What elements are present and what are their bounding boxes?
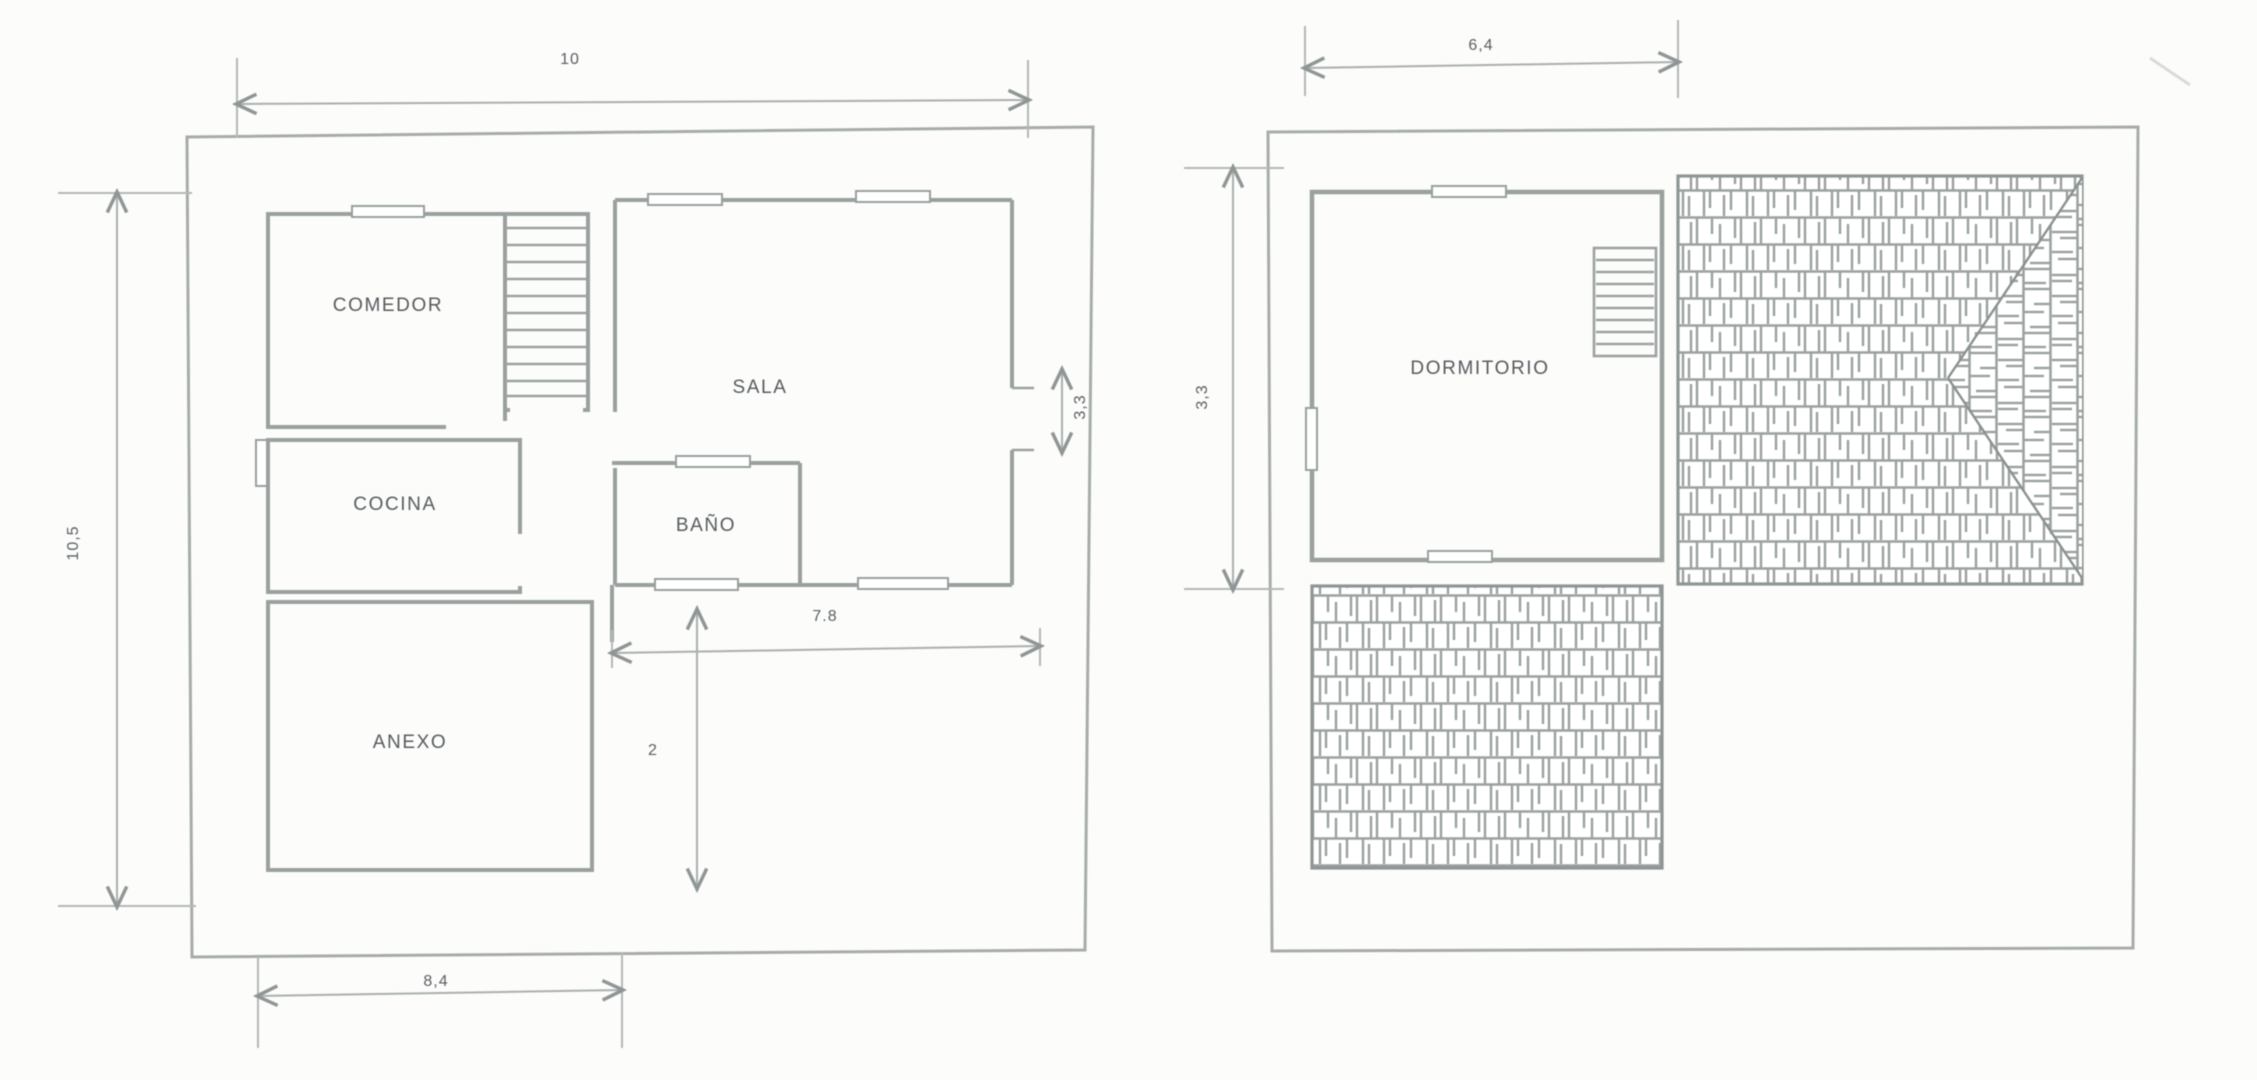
dim-label-left-height: 10,5 bbox=[65, 525, 82, 560]
ground-floor-site-boundary bbox=[187, 127, 1093, 957]
upper-stair-treads bbox=[1596, 260, 1654, 344]
roof-hatch-bottom-left bbox=[1312, 586, 1662, 868]
room-label-cocina: COCINA bbox=[353, 494, 437, 515]
ground-floor-plan: COMEDOR COCINA SALA BAÑO ANEXO 10 10,5 8… bbox=[58, 51, 1093, 1048]
dim-label-left-height: 3,3 bbox=[1194, 384, 1211, 409]
dim-label-bottom-width: 8,4 bbox=[423, 973, 448, 990]
window-icon bbox=[856, 191, 930, 202]
dim-label-top-width: 10 bbox=[560, 51, 580, 68]
window-icon bbox=[256, 440, 267, 486]
ground-floor-windows bbox=[256, 191, 948, 590]
window-icon bbox=[648, 194, 722, 205]
ground-floor-dimensions bbox=[58, 58, 1062, 1048]
dimension-line-bottom bbox=[258, 990, 622, 996]
dim-label-interior-height: 2 bbox=[648, 742, 658, 759]
room-label-anexo: ANEXO bbox=[373, 732, 448, 753]
cocina-walls bbox=[268, 440, 520, 592]
stair-treads bbox=[507, 228, 586, 396]
upper-stair-enclosure bbox=[1594, 248, 1656, 356]
dimension-line-interior-width bbox=[612, 646, 1040, 653]
window-icon bbox=[858, 578, 948, 589]
window-icon bbox=[352, 206, 424, 217]
window-icon bbox=[1428, 551, 1492, 562]
scanned-floor-plan-sheet: COMEDOR COCINA SALA BAÑO ANEXO 10 10,5 8… bbox=[0, 0, 2257, 1080]
dim-label-interior-width: 7.8 bbox=[812, 608, 837, 625]
floor-plan-drawing: COMEDOR COCINA SALA BAÑO ANEXO 10 10,5 8… bbox=[0, 0, 2257, 1080]
upper-floor-dimensions bbox=[1184, 20, 1678, 589]
window-icon bbox=[1432, 186, 1506, 197]
window-icon bbox=[676, 456, 750, 467]
upper-floor-plan: DORMITORIO 6,4 3,3 bbox=[1184, 20, 2138, 951]
dimension-line-top bbox=[237, 100, 1028, 104]
room-label-bano: BAÑO bbox=[676, 514, 736, 536]
scan-artifact bbox=[2150, 58, 2190, 85]
room-label-comedor: COMEDOR bbox=[333, 295, 443, 316]
comedor-walls bbox=[268, 214, 505, 427]
window-icon bbox=[655, 579, 738, 590]
dim-label-top-width: 6,4 bbox=[1468, 37, 1493, 54]
room-label-dormitorio: DORMITORIO bbox=[1410, 358, 1549, 379]
room-label-sala: SALA bbox=[733, 377, 788, 398]
window-icon bbox=[1306, 408, 1317, 470]
dimension-line-top bbox=[1305, 62, 1678, 68]
dim-label-right-opening: 3,3 bbox=[1072, 394, 1089, 419]
